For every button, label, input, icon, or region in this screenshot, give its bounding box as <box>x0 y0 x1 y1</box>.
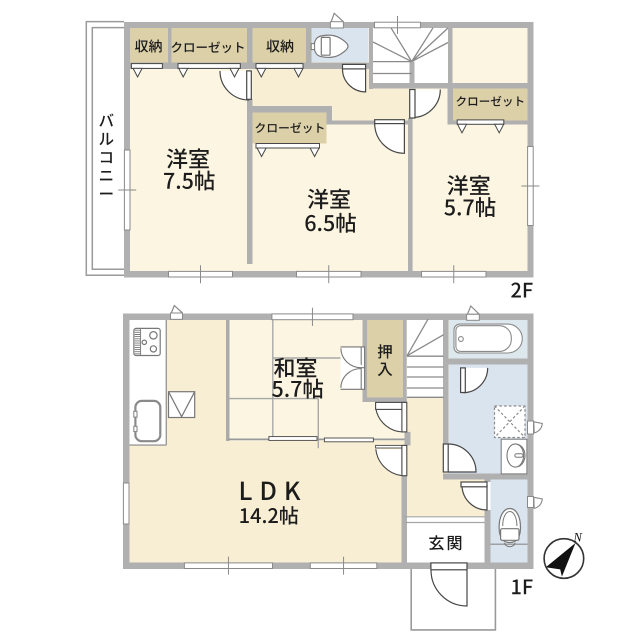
svg-text:N: N <box>573 531 583 545</box>
